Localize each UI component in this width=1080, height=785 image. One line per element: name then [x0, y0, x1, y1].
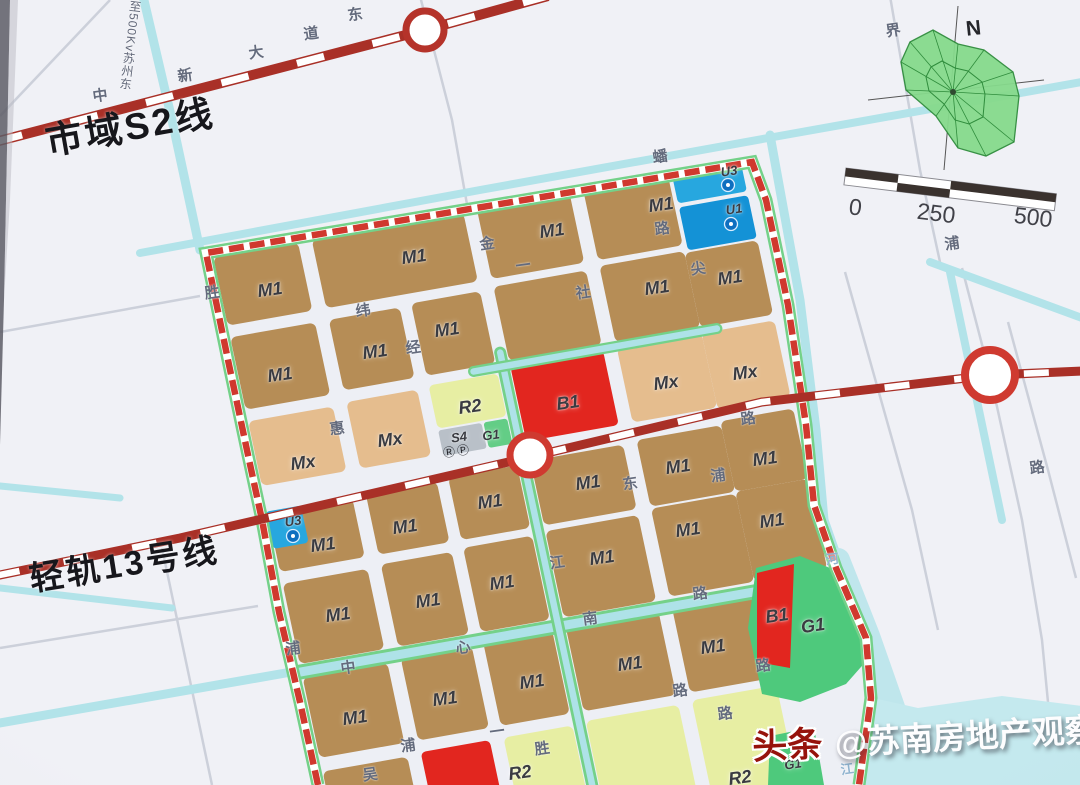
station-circle: [406, 11, 444, 49]
station-circle: [510, 435, 550, 475]
parcel-m1: [684, 240, 773, 327]
parcel-m1: [230, 322, 330, 409]
zoning-map-photo: M1M1M1M1M1M1M1M1M1MxMxR2S4G1B1MxMxU3U1U3…: [0, 0, 1080, 785]
station-circle: [965, 350, 1015, 400]
watermark-brand: 头条: [751, 724, 823, 767]
parcel-m1: [283, 569, 385, 664]
watermark-account: @苏南房地产观察: [834, 711, 1080, 762]
parcel-b1: [757, 564, 794, 668]
parcel-m1: [720, 408, 808, 491]
parcel-m1: [651, 494, 754, 597]
scale-tick-500: 500: [1012, 202, 1053, 233]
parcel-m1: [545, 515, 656, 617]
parcel-mx: [346, 390, 431, 469]
scale-tick-250: 250: [915, 198, 956, 229]
parcel-m1: [329, 307, 415, 390]
north-label: N: [965, 16, 983, 41]
wind-rose: [868, 6, 1044, 170]
parcel-m1: [303, 663, 405, 758]
